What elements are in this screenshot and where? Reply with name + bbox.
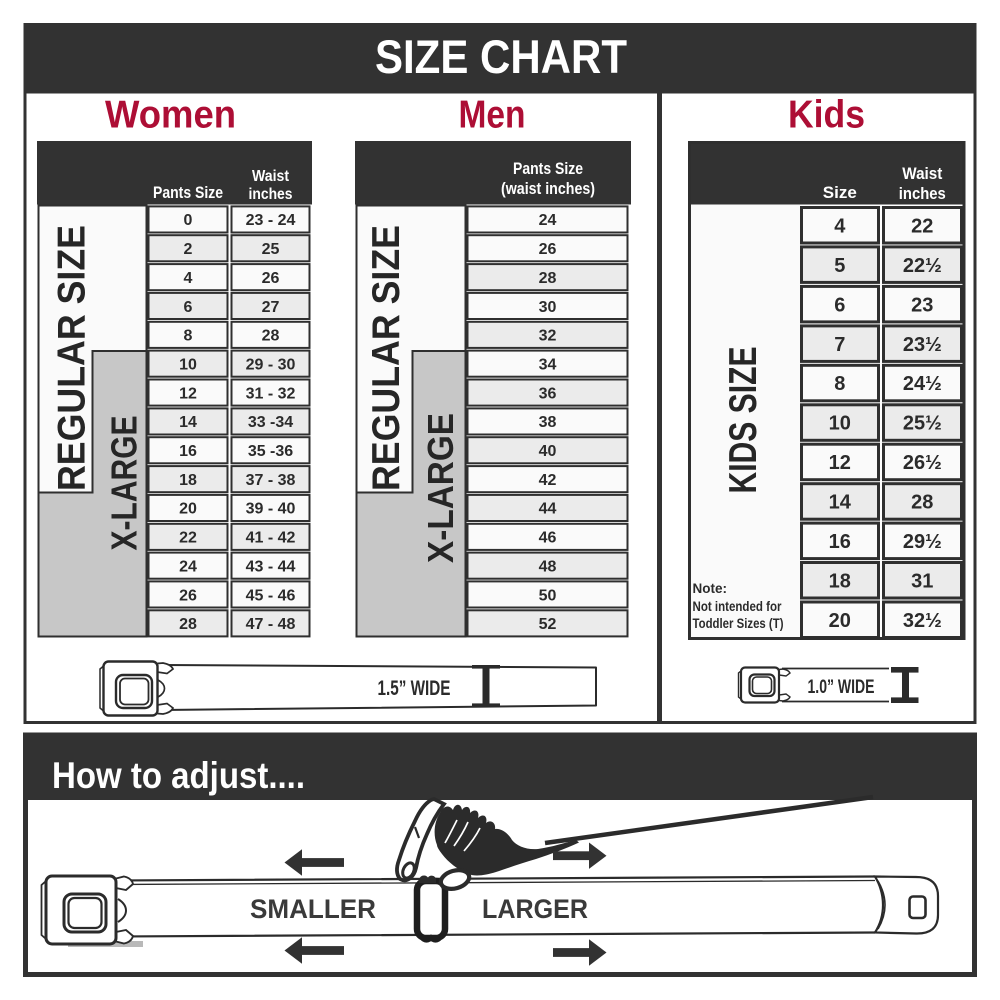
svg-text:23½: 23½ [903, 334, 942, 356]
svg-text:X-LARGE: X-LARGE [104, 416, 145, 551]
svg-text:44: 44 [539, 501, 557, 518]
svg-text:10: 10 [179, 356, 197, 373]
svg-text:23 - 24: 23 - 24 [246, 212, 296, 229]
svg-text:45 - 46: 45 - 46 [246, 587, 296, 604]
svg-text:39 - 40: 39 - 40 [246, 501, 296, 518]
svg-text:14: 14 [829, 492, 852, 514]
svg-text:0: 0 [184, 212, 193, 229]
svg-text:31: 31 [911, 570, 933, 592]
svg-text:LARGER: LARGER [482, 894, 588, 924]
svg-text:31 - 32: 31 - 32 [246, 385, 296, 402]
svg-text:(waist inches): (waist inches) [501, 179, 595, 198]
svg-text:24: 24 [179, 558, 197, 575]
svg-text:28: 28 [262, 328, 280, 345]
svg-text:SMALLER: SMALLER [250, 894, 376, 924]
svg-text:40: 40 [539, 443, 557, 460]
svg-text:SIZE CHART: SIZE CHART [375, 30, 627, 83]
svg-text:26: 26 [179, 587, 197, 604]
svg-text:Pants Size: Pants Size [153, 183, 223, 202]
svg-text:48: 48 [539, 558, 557, 575]
svg-text:18: 18 [829, 570, 851, 592]
svg-text:4: 4 [184, 270, 193, 287]
svg-text:inches: inches [899, 184, 946, 203]
svg-text:12: 12 [829, 452, 851, 474]
svg-text:41 - 42: 41 - 42 [246, 530, 296, 547]
svg-text:29½: 29½ [903, 531, 942, 553]
svg-text:REGULAR SIZE: REGULAR SIZE [365, 225, 408, 491]
svg-text:REGULAR SIZE: REGULAR SIZE [51, 225, 94, 491]
svg-text:1.0” WIDE: 1.0” WIDE [808, 677, 875, 698]
svg-text:7: 7 [834, 334, 845, 356]
svg-text:X-LARGE: X-LARGE [420, 413, 461, 563]
svg-text:18: 18 [179, 472, 197, 489]
svg-text:Women: Women [105, 94, 236, 137]
svg-text:47 - 48: 47 - 48 [246, 616, 296, 633]
svg-text:28: 28 [539, 270, 557, 287]
svg-text:Kids: Kids [788, 94, 865, 137]
svg-text:Waist: Waist [902, 164, 942, 183]
svg-text:24: 24 [539, 212, 557, 229]
svg-text:How to adjust....: How to adjust.... [52, 755, 305, 796]
svg-text:6: 6 [834, 294, 845, 316]
svg-text:29 - 30: 29 - 30 [246, 356, 296, 373]
svg-text:8: 8 [184, 328, 193, 345]
svg-text:30: 30 [539, 299, 557, 316]
svg-text:Size: Size [823, 183, 857, 202]
svg-text:33 -34: 33 -34 [248, 414, 293, 431]
svg-text:25: 25 [262, 241, 280, 258]
svg-text:16: 16 [179, 443, 197, 460]
svg-text:37 - 38: 37 - 38 [246, 472, 296, 489]
svg-text:12: 12 [179, 385, 197, 402]
svg-text:36: 36 [539, 385, 557, 402]
svg-text:46: 46 [539, 530, 557, 547]
svg-text:20: 20 [829, 610, 851, 632]
svg-text:23: 23 [911, 294, 933, 316]
svg-text:26: 26 [539, 241, 557, 258]
svg-text:5: 5 [834, 255, 845, 277]
svg-text:4: 4 [834, 215, 846, 237]
svg-text:8: 8 [834, 373, 845, 395]
svg-text:1.5” WIDE: 1.5” WIDE [378, 677, 451, 700]
svg-text:43 - 44: 43 - 44 [246, 558, 296, 575]
svg-text:KIDS SIZE: KIDS SIZE [722, 347, 765, 494]
svg-text:20: 20 [179, 501, 197, 518]
svg-text:Not intended for: Not intended for [693, 599, 783, 614]
svg-text:50: 50 [539, 587, 557, 604]
svg-text:inches: inches [249, 186, 293, 203]
svg-text:Men: Men [459, 94, 526, 137]
svg-text:2: 2 [184, 241, 193, 258]
svg-text:34: 34 [539, 356, 557, 373]
svg-text:32½: 32½ [903, 610, 942, 632]
svg-text:Waist: Waist [252, 168, 290, 185]
svg-text:38: 38 [539, 414, 557, 431]
svg-text:27: 27 [262, 299, 280, 316]
svg-text:26½: 26½ [903, 452, 942, 474]
svg-text:16: 16 [829, 531, 851, 553]
svg-text:Note:: Note: [693, 581, 728, 596]
svg-text:25½: 25½ [903, 413, 942, 435]
svg-text:Toddler Sizes (T): Toddler Sizes (T) [693, 616, 784, 631]
svg-text:10: 10 [829, 413, 851, 435]
svg-text:35 -36: 35 -36 [248, 443, 293, 460]
svg-text:22½: 22½ [903, 255, 942, 277]
svg-text:52: 52 [539, 616, 557, 633]
svg-text:26: 26 [262, 270, 280, 287]
svg-text:28: 28 [911, 492, 933, 514]
svg-text:Pants Size: Pants Size [513, 159, 583, 178]
svg-text:42: 42 [539, 472, 557, 489]
svg-text:32: 32 [539, 328, 557, 345]
svg-text:14: 14 [179, 414, 197, 431]
svg-text:6: 6 [184, 299, 193, 316]
svg-text:22: 22 [179, 530, 197, 547]
svg-text:22: 22 [911, 215, 933, 237]
svg-text:28: 28 [179, 616, 197, 633]
svg-text:24½: 24½ [903, 373, 942, 395]
